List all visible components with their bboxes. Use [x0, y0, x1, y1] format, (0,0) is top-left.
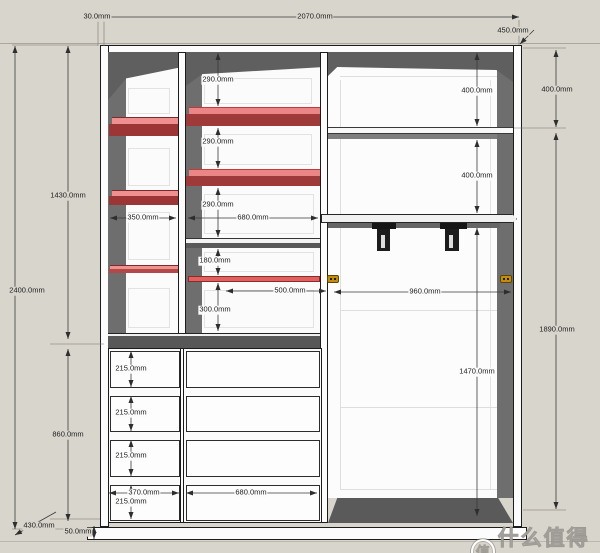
dim-left-column-width: 350.0mm [126, 214, 159, 223]
dim-right-top-2: 400.0mm [460, 172, 493, 181]
dim-drawer-1: 215.0mm [114, 365, 147, 374]
dim-rod-length: 500.0mm [273, 287, 306, 296]
dim-drawer-3: 215.0mm [114, 452, 147, 461]
dim-depth: 450.0mm [496, 27, 529, 36]
dim-drawer-left-width: 370.0mm [127, 489, 160, 498]
dim-right-outer-top: 400.0mm [540, 86, 573, 95]
dim-right-outer-body: 1890.0mm [538, 326, 575, 335]
dim-drawer-right-width: 680.0mm [234, 489, 267, 498]
wardrobe-elevation-drawing: 30.0mm 2070.0mm 450.0mm 2400.0mm 1430.0m… [0, 0, 600, 553]
dim-mid-column-width: 680.0mm [236, 214, 269, 223]
dim-hanging-height: 1470.0mm [458, 368, 495, 377]
dim-drawer-4: 215.0mm [114, 498, 147, 507]
dim-overall-width: 2070.0mm [296, 13, 333, 22]
dimension-lines [0, 0, 600, 553]
watermark-text: 什么值得买 [498, 522, 600, 553]
dim-panel-thickness: 30.0mm [82, 13, 111, 22]
dim-plinth-height: 50.0mm [63, 528, 92, 537]
dim-mid-gap-3: 290.0mm [201, 201, 234, 210]
smzdm-logo-icon: 值 [471, 539, 495, 553]
watermark: 值 什么值得买 [471, 522, 600, 553]
dim-mid-gap-5: 300.0mm [198, 306, 231, 315]
dim-right-column-width: 960.0mm [408, 288, 441, 297]
dim-right-top-1: 400.0mm [460, 87, 493, 96]
dim-drawer-2: 215.0mm [114, 409, 147, 418]
dim-overall-height: 2400.0mm [8, 287, 45, 296]
dim-mid-gap-2: 290.0mm [201, 138, 234, 147]
dim-drawer-height: 860.0mm [51, 431, 84, 440]
dim-mid-gap-1: 290.0mm [201, 76, 234, 85]
dim-mid-gap-4: 180.0mm [198, 257, 231, 266]
dim-base-depth: 430.0mm [22, 522, 55, 531]
dim-upper-height: 1430.0mm [49, 192, 86, 201]
